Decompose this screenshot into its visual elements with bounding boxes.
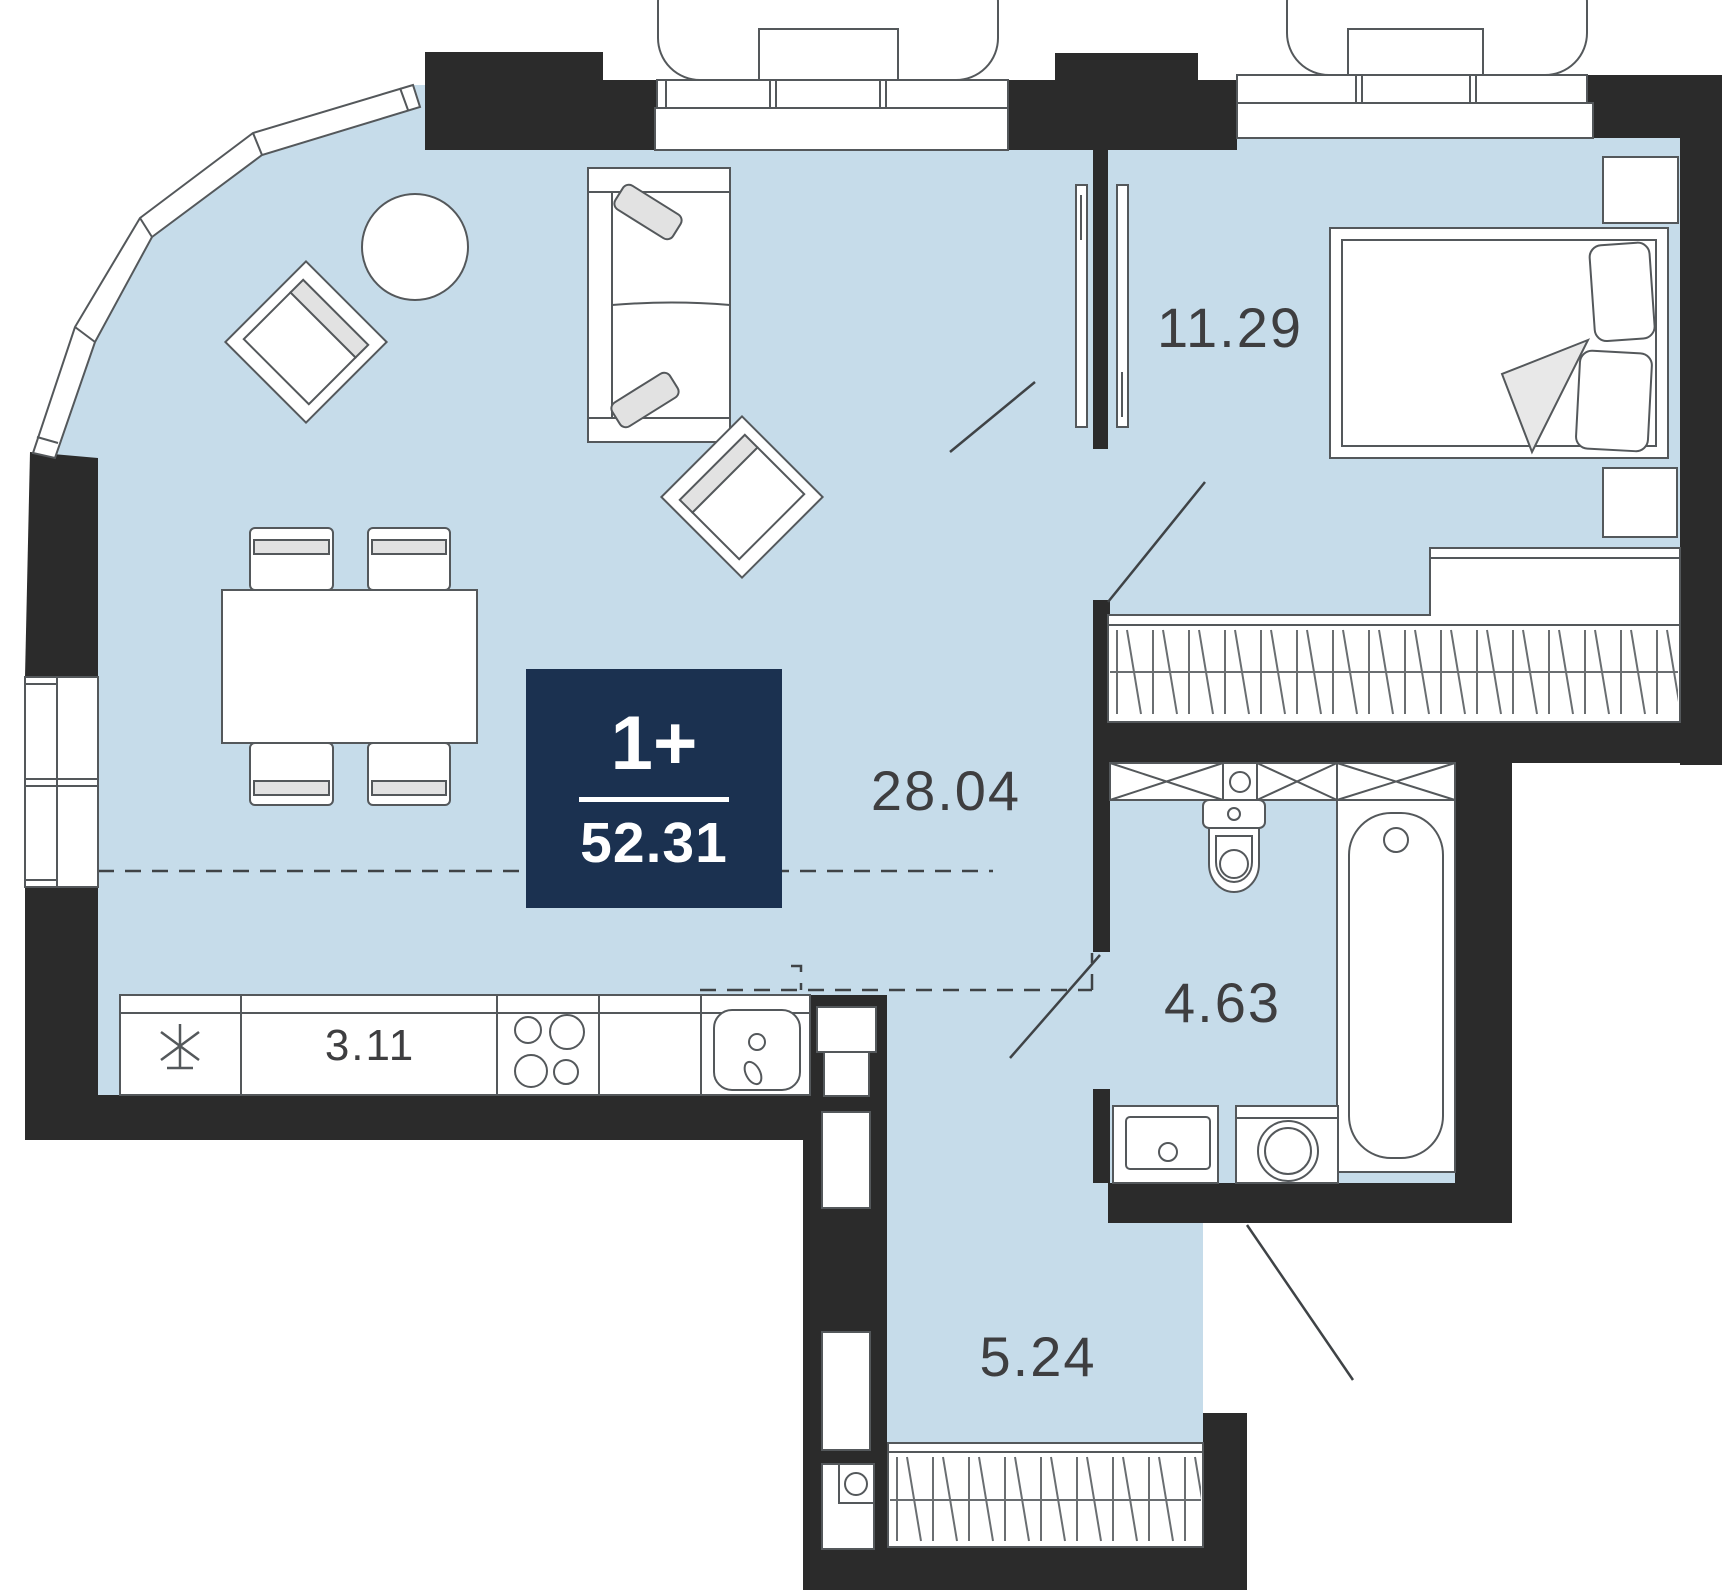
hallway-wardrobe [888, 1443, 1203, 1547]
shaft-niche [822, 1112, 870, 1208]
chair-back [372, 781, 446, 795]
shaft-niche [822, 1332, 870, 1450]
washing-machine-icon [1236, 1106, 1338, 1183]
facade-ledge-right-inner [1348, 29, 1483, 75]
badge-divider [579, 797, 729, 802]
area-label-living: 28.04 [850, 760, 1042, 820]
wall-bathroom-right [1455, 763, 1512, 1223]
kitchen-sink-icon [714, 1010, 800, 1090]
wall-hallway-bottom [803, 1547, 1247, 1590]
bathtub-icon [1337, 800, 1455, 1172]
bed-pillow [1575, 350, 1652, 452]
round-side-table [362, 194, 468, 300]
left-window-sill [57, 677, 98, 887]
toilet-icon [1203, 800, 1265, 892]
dining-chair [368, 528, 450, 590]
area-label-hallway: 5.24 [945, 1326, 1131, 1386]
apartment-total-area: 52.31 [580, 815, 728, 872]
cabinet-band [1110, 763, 1455, 800]
apartment-type-label: 1+ [611, 706, 698, 782]
shaft-niche [817, 1007, 876, 1052]
shaft-niche [824, 1052, 869, 1096]
wall-top-right [1587, 75, 1722, 138]
wall-bathroom-left-upper [1093, 763, 1110, 952]
wall-left-upper [25, 452, 98, 677]
area-label-bathroom: 4.63 [1130, 972, 1315, 1032]
bedroom-window-band [1237, 75, 1587, 103]
bedroom-window-sill [1237, 103, 1593, 138]
facade-ledge-left-inner [759, 29, 898, 80]
chair-back [254, 540, 329, 554]
living-window-band [657, 80, 1008, 108]
nightstand [1603, 157, 1678, 223]
sofa [588, 168, 730, 442]
wall-top-left [425, 52, 657, 150]
toilet-tank [1203, 800, 1265, 828]
dining-chair [368, 743, 450, 805]
entrance-door-swing [1247, 1225, 1353, 1380]
floor-bathroom-doorway [1085, 952, 1115, 1089]
wall-bathroom-bottom [1108, 1183, 1512, 1223]
chair-back [372, 540, 446, 554]
kitchen-counter-outline [120, 995, 810, 1095]
dining-chair [250, 743, 333, 805]
wall-right [1680, 138, 1722, 765]
nightstand [1603, 468, 1677, 537]
wall-bathroom-left-lower [1093, 1089, 1110, 1183]
dining-table [222, 590, 477, 743]
wall-bedroom-partition [1093, 150, 1108, 449]
floor-bedroom-doorway [1080, 449, 1120, 602]
dining-chair [250, 528, 333, 590]
left-window-band [25, 677, 57, 887]
chair-back [254, 781, 329, 795]
wall-kitchen-bottom [80, 1095, 812, 1140]
living-window-sill [655, 108, 1008, 150]
bathtub-outline [1337, 800, 1455, 1172]
kitchen-counter [120, 995, 810, 1095]
bed-pillow [1589, 242, 1656, 342]
wall-top-center-pillar [1008, 53, 1237, 150]
area-label-bedroom: 11.29 [1140, 297, 1320, 357]
apartment-badge: 1+ 52.31 [526, 669, 782, 908]
bed [1330, 228, 1668, 458]
wall-hallway-right [1203, 1413, 1247, 1552]
area-label-kitchen: 3.11 [280, 1020, 460, 1072]
wall-wardrobe-bottom [1093, 722, 1722, 763]
floor-plan: 11.29 28.04 4.63 5.24 3.11 1+ 52.31 [0, 0, 1722, 1590]
bathroom-sink-icon [1113, 1106, 1218, 1183]
bathroom-cabinets [1110, 763, 1455, 800]
